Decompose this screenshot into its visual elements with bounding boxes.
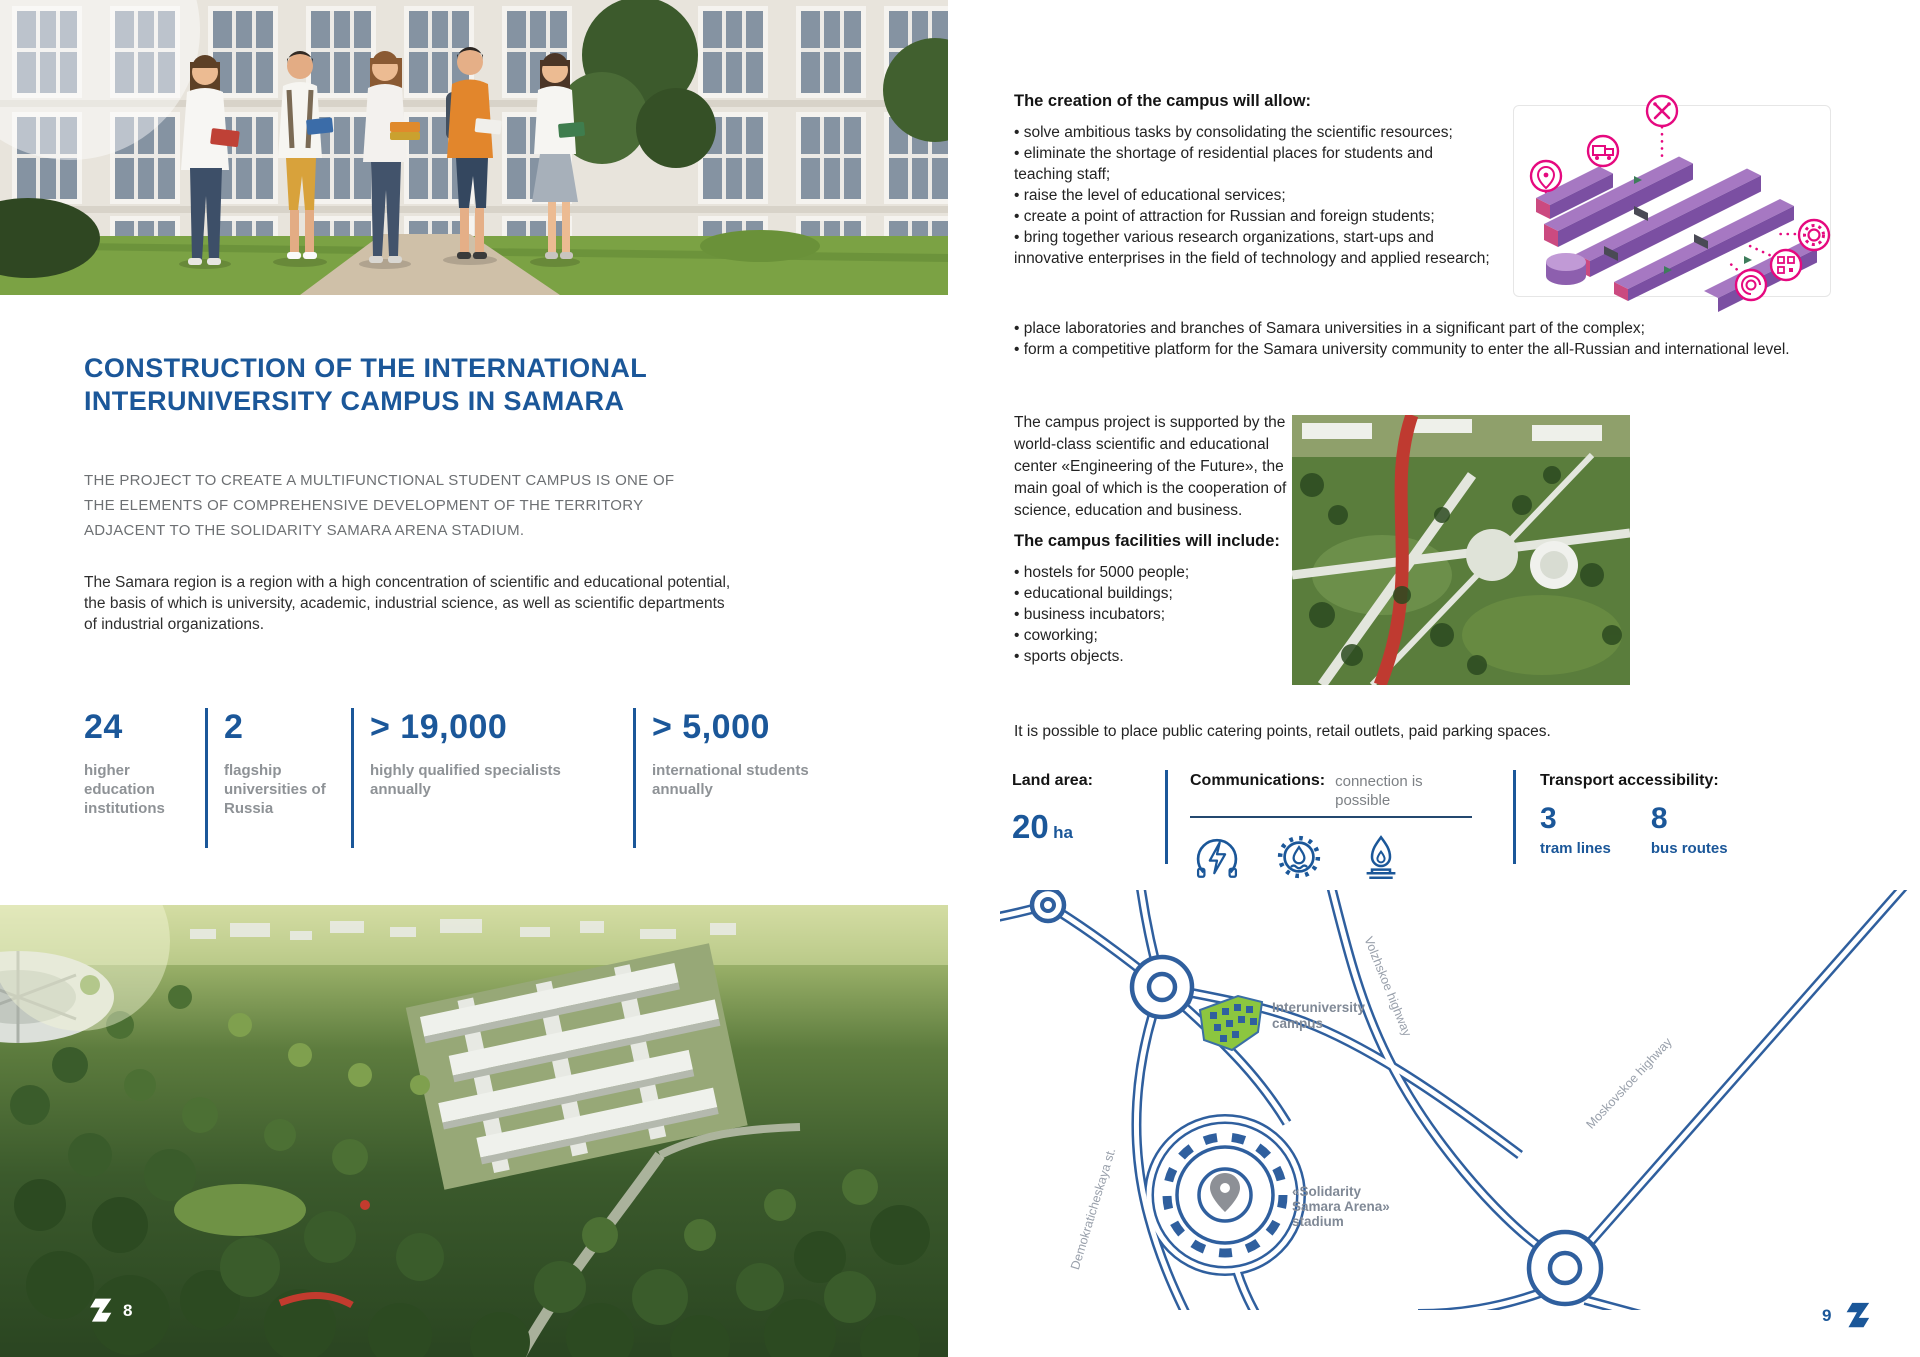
map-label-campus-line2: campus <box>1272 1016 1323 1031</box>
catering-text: It is possible to place public catering … <box>1014 722 1874 742</box>
bullet-item: • eliminate the shortage of residential … <box>1014 143 1492 185</box>
stat-institutions: 24 higher education institutions <box>84 708 205 848</box>
location-map-art: Interuniversity campus «Solidarity Samar… <box>1000 890 1910 1310</box>
support-paragraph: The campus project is supported by the w… <box>1014 412 1292 522</box>
bullet-item: • sports objects. <box>1014 646 1274 667</box>
stat-value: > 19,000 <box>370 708 619 747</box>
stat-value: > 5,000 <box>652 708 829 747</box>
creation-heading: The creation of the campus will allow: <box>1014 92 1311 111</box>
stat-label: international students annually <box>652 761 829 799</box>
round-building <box>1546 253 1586 285</box>
page-title-line1: CONSTRUCTION OF THE INTERNATIONAL <box>84 352 744 385</box>
communications-label: Communications: <box>1190 772 1325 790</box>
building-bars <box>1536 157 1817 313</box>
page-number-left: 8 <box>123 1301 132 1321</box>
map-label-stadium-line1: «Solidarity <box>1292 1184 1362 1199</box>
left-page-footer: 8 <box>84 1296 132 1326</box>
map-label-stadium-line2: Samara Arena» <box>1292 1199 1390 1214</box>
map-label-campus-line1: Interuniversity <box>1272 1000 1366 1015</box>
page-title: CONSTRUCTION OF THE INTERNATIONAL INTERU… <box>84 352 744 418</box>
divider <box>1165 770 1168 864</box>
stat-international: > 5,000 international students annually <box>633 708 843 848</box>
brand-logo-icon <box>84 1296 114 1326</box>
stat-label: highly qualified specialists annually <box>370 761 619 799</box>
bullet-item: • bring together various research organi… <box>1014 227 1492 269</box>
bullet-item: • place laboratories and branches of Sam… <box>1014 318 1814 339</box>
stat-value: 2 <box>224 708 337 747</box>
stat-label: higher education institutions <box>84 761 191 818</box>
stat-flagship: 2 flagship universities of Russia <box>205 708 351 848</box>
creation-bullets-wide: • place laboratories and branches of Sam… <box>1014 318 1814 360</box>
divider <box>1513 770 1516 864</box>
aerial-campus-photo: 8 <box>0 905 948 1357</box>
page-title-line2: INTERUNIVERSITY CAMPUS IN SAMARA <box>84 385 744 418</box>
gas-icon <box>1354 830 1408 884</box>
bullet-item: • coworking; <box>1014 625 1274 646</box>
qr-icon <box>1769 248 1803 282</box>
location-map: Interuniversity campus «Solidarity Samar… <box>1000 890 1910 1310</box>
key-figures: 24 higher education institutions 2 flags… <box>84 708 843 848</box>
transport-label: Transport accessibility: <box>1540 772 1800 790</box>
campus-area <box>1200 996 1262 1050</box>
motor-icon <box>1734 268 1768 302</box>
map-label-demokraticheskaya: Demokraticheskaya st. <box>1068 1146 1118 1271</box>
bullet-item: • solve ambitious tasks by consolidating… <box>1014 122 1492 143</box>
lead-paragraph: THE PROJECT TO CREATE A MULTIFUNCTIONAL … <box>84 468 684 543</box>
page-number-right: 9 <box>1822 1306 1831 1326</box>
stat-specialists: > 19,000 highly qualified specialists an… <box>351 708 633 848</box>
park-photo-art <box>1292 415 1630 685</box>
water-icon <box>1272 830 1326 884</box>
map-label-stadium-line3: stadium <box>1292 1214 1344 1229</box>
bullet-item: • form a competitive platform for the Sa… <box>1014 339 1814 360</box>
tools-icon <box>1645 94 1679 128</box>
bus-value: 8 <box>1651 802 1728 836</box>
creation-bullets-narrow: • solve ambitious tasks by consolidating… <box>1014 122 1492 269</box>
students-photo <box>0 0 948 295</box>
location-pin-icon <box>1529 159 1563 193</box>
tram-stat: 3 tram lines <box>1540 802 1611 857</box>
gear-icon <box>1797 218 1831 252</box>
land-area-block: Land area: 20 ha <box>1012 772 1093 846</box>
bullet-item: • hostels for 5000 people; <box>1014 562 1274 583</box>
map-label-moskovskoe: Moskovskoe highway <box>1583 1035 1675 1132</box>
bullet-item: • educational buildings; <box>1014 583 1274 604</box>
bullet-item: • create a point of attraction for Russi… <box>1014 206 1492 227</box>
facilities-heading: The campus facilities will include: <box>1014 532 1280 551</box>
tram-value: 3 <box>1540 802 1611 836</box>
land-area-value: 20 <box>1012 808 1049 845</box>
transport-block: Transport accessibility: 3 tram lines 8 … <box>1540 772 1800 857</box>
bullet-item: • business incubators; <box>1014 604 1274 625</box>
bus-stat: 8 bus routes <box>1651 802 1728 857</box>
bus-label: bus routes <box>1651 840 1728 857</box>
stat-label: flagship universities of Russia <box>224 761 337 818</box>
park-photo <box>1292 415 1630 685</box>
body-paragraph: The Samara region is a region with a hig… <box>84 572 734 635</box>
facilities-bullets: • hostels for 5000 people; • educational… <box>1014 562 1274 667</box>
truck-icon <box>1586 134 1620 168</box>
campus-isometric-diagram <box>1513 105 1831 297</box>
electricity-icon <box>1190 830 1244 884</box>
communications-note: connection is possible <box>1335 772 1427 810</box>
communications-block: Communications: connection is possible <box>1190 772 1472 884</box>
students-photo-art <box>0 0 948 295</box>
tram-label: tram lines <box>1540 840 1611 857</box>
brochure-spread: CONSTRUCTION OF THE INTERNATIONAL INTERU… <box>0 0 1920 1357</box>
map-roads-center <box>1000 890 1910 1310</box>
stat-value: 24 <box>84 708 191 747</box>
land-area-unit: ha <box>1053 823 1073 842</box>
right-page-footer: 9 <box>1822 1300 1872 1332</box>
bullet-item: • raise the level of educational service… <box>1014 185 1492 206</box>
brand-logo-icon <box>1840 1300 1872 1332</box>
aerial-campus-art <box>0 905 948 1357</box>
land-area-label: Land area: <box>1012 772 1093 790</box>
